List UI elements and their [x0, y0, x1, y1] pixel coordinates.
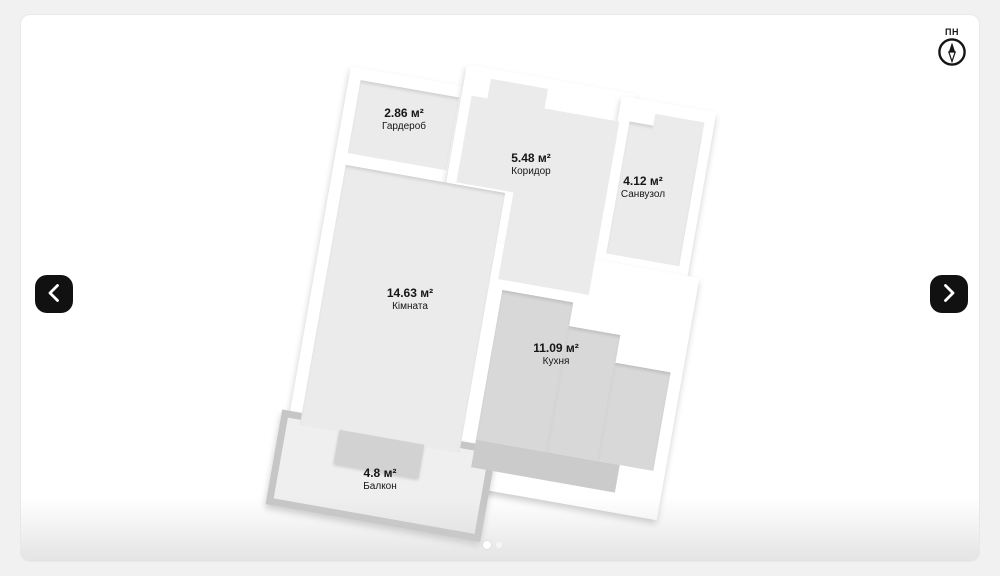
- room-label-kitchen: 11.09 м² Кухня: [533, 342, 579, 368]
- room-name: Кімната: [387, 301, 433, 313]
- carousel-dots: [483, 541, 502, 549]
- chevron-left-icon: [35, 274, 73, 315]
- room-label-corridor: 5.48 м² Коридор: [511, 152, 551, 178]
- room-label-bathroom: 4.12 м² Санвузол: [621, 175, 665, 201]
- room-label-balcony: 4.8 м² Балкон: [363, 467, 397, 493]
- compass-icon: [937, 54, 967, 71]
- room-name: Санвузол: [621, 189, 665, 201]
- next-plan-button[interactable]: [930, 275, 968, 313]
- floorplan-drawing: [227, 14, 755, 562]
- room-name: Балкон: [363, 481, 397, 493]
- room-name: Кухня: [533, 356, 579, 368]
- carousel-dot[interactable]: [496, 542, 502, 548]
- room-label-living: 14.63 м² Кімната: [387, 287, 433, 313]
- compass: ПН: [937, 27, 967, 72]
- room-area: 4.8 м²: [363, 467, 397, 480]
- room-area: 11.09 м²: [533, 342, 579, 355]
- compass-north-label: ПН: [937, 27, 967, 37]
- previous-plan-button[interactable]: [35, 275, 73, 313]
- room-name: Гардероб: [382, 121, 426, 133]
- room-area: 4.12 м²: [621, 175, 665, 188]
- room-area: 2.86 м²: [382, 107, 426, 120]
- room-label-wardrobe: 2.86 м² Гардероб: [382, 107, 426, 133]
- room-name: Коридор: [511, 166, 551, 178]
- room-area: 5.48 м²: [511, 152, 551, 165]
- chevron-right-icon: [930, 274, 968, 315]
- floorplan-card: 2.86 м² Гардероб 5.48 м² Коридор 4.12 м²…: [20, 14, 980, 562]
- carousel-dot-active[interactable]: [483, 541, 491, 549]
- room-area: 14.63 м²: [387, 287, 433, 300]
